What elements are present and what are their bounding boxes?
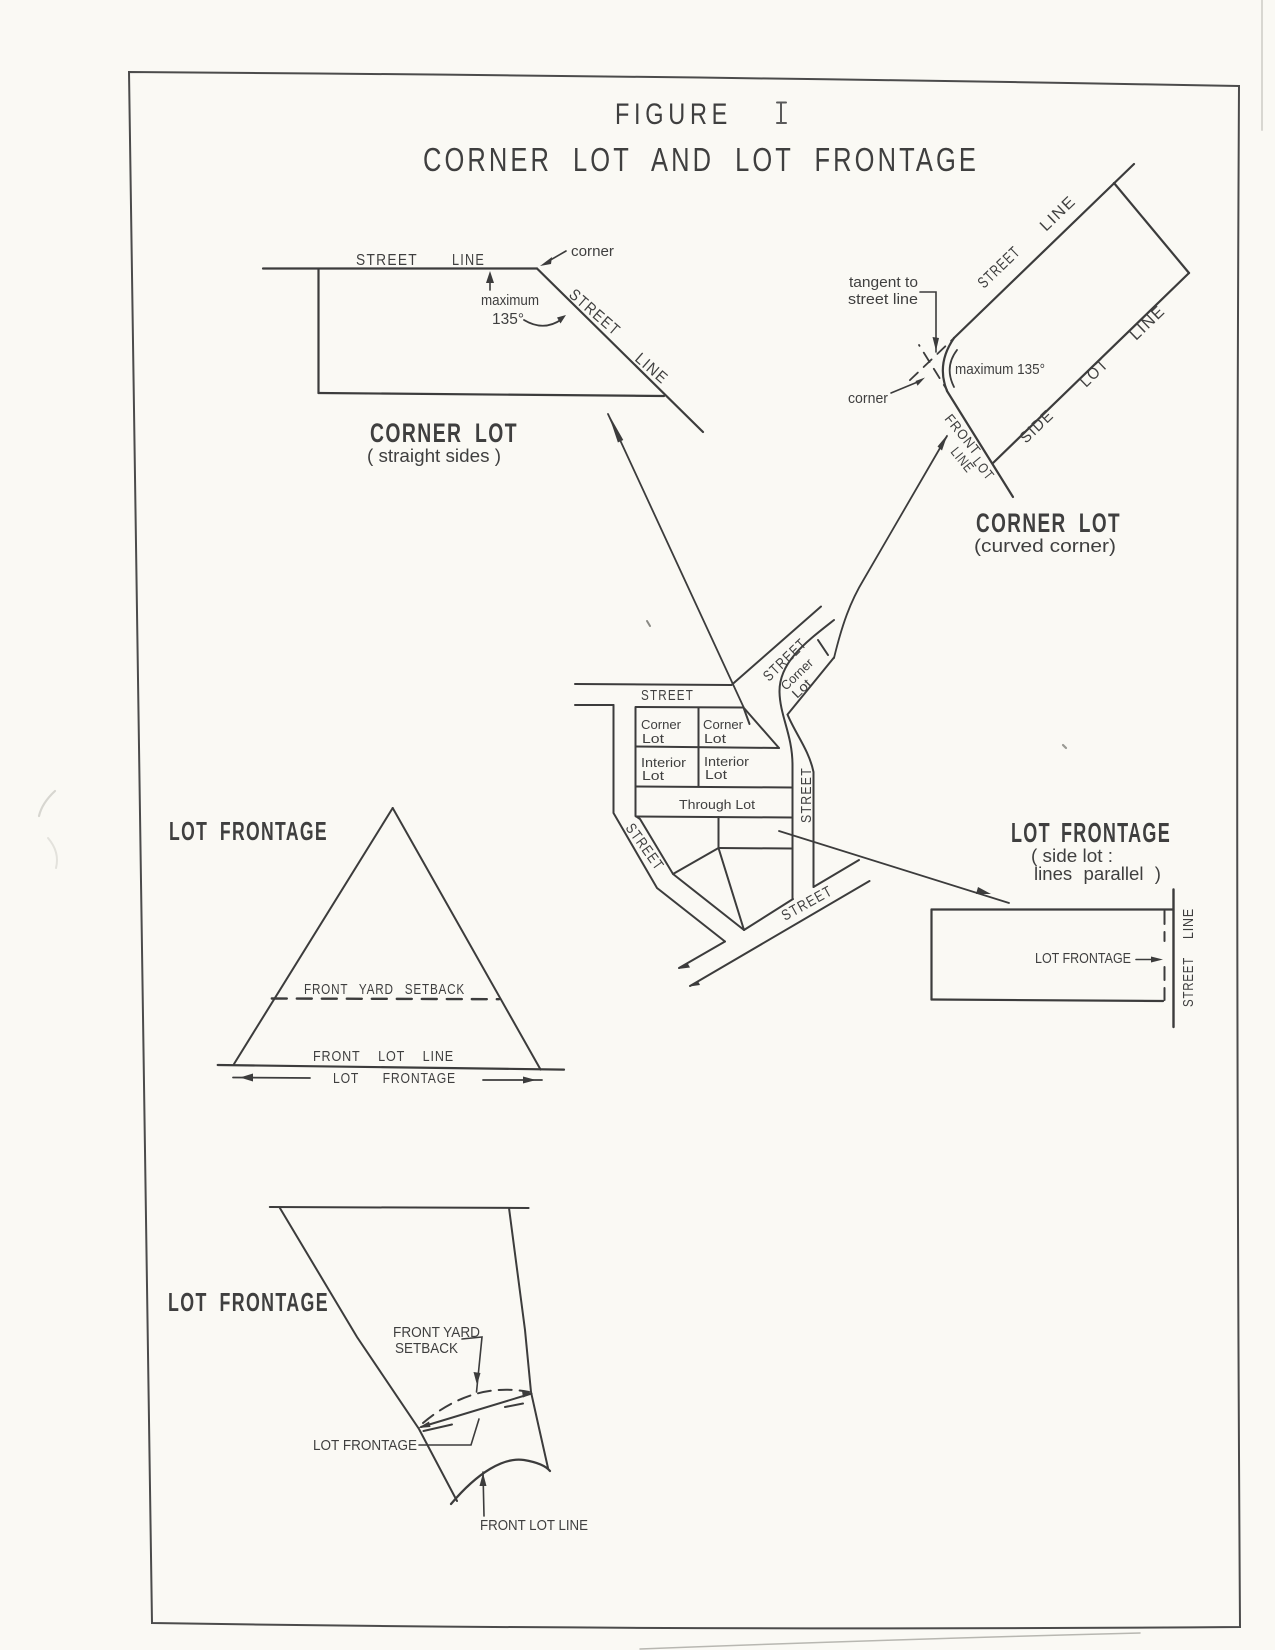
svg-text:LINE: LINE	[452, 252, 485, 269]
svg-text:SETBACK: SETBACK	[395, 1340, 458, 1357]
svg-text:Lot: Lot	[642, 731, 664, 746]
svg-text:LOT FRONTAGE: LOT FRONTAGE	[333, 1070, 456, 1087]
svg-text:SIDE: SIDE	[1017, 407, 1058, 447]
svg-text:lines parallel ): lines parallel )	[1034, 864, 1161, 884]
svg-text:CORNER LOT: CORNER LOT	[370, 418, 518, 448]
svg-text:LOT FRONTAGE: LOT FRONTAGE	[1035, 950, 1131, 967]
svg-text:Through Lot: Through Lot	[679, 797, 755, 812]
svg-text:STREET: STREET	[1180, 957, 1197, 1007]
svg-text:STREET: STREET	[356, 252, 418, 269]
svg-text:FIGURE: FIGURE	[615, 98, 732, 131]
svg-text:street line: street line	[848, 291, 918, 308]
svg-text:LOT FRONTAGE: LOT FRONTAGE	[1011, 817, 1171, 848]
svg-text:STREET: STREET	[798, 767, 815, 823]
svg-text:LOT FRONTAGE: LOT FRONTAGE	[169, 816, 328, 846]
svg-text:( side lot :: ( side lot :	[1031, 846, 1113, 866]
svg-text:( straight sides ): ( straight sides )	[367, 446, 501, 466]
svg-text:135°: 135°	[492, 311, 524, 328]
svg-text:LINE: LINE	[1127, 302, 1169, 343]
svg-text:Corner: Corner	[641, 717, 682, 732]
svg-text:LOT FRONTAGE: LOT FRONTAGE	[313, 1437, 417, 1454]
svg-text:corner: corner	[848, 390, 888, 407]
svg-text:FRONT LOT LINE: FRONT LOT LINE	[313, 1048, 454, 1065]
svg-text:LOT: LOT	[1077, 356, 1113, 391]
svg-text:FRONT LOT LINE: FRONT LOT LINE	[480, 1517, 588, 1534]
svg-text:LOT FRONTAGE: LOT FRONTAGE	[168, 1287, 329, 1317]
svg-text:CORNER LOT: CORNER LOT	[976, 508, 1121, 538]
svg-text:tangent to: tangent to	[849, 274, 918, 291]
svg-text:CORNER LOT AND LOT FRONTAGE: CORNER LOT AND LOT FRONTAGE	[423, 141, 979, 178]
svg-text:Lot: Lot	[704, 731, 726, 746]
svg-text:STREET: STREET	[641, 687, 694, 704]
svg-text:STREET: STREET	[975, 244, 1024, 292]
svg-text:FRONT YARD SETBACK: FRONT YARD SETBACK	[304, 981, 465, 998]
svg-text:Lot: Lot	[705, 767, 727, 782]
svg-text:corner: corner	[571, 243, 614, 260]
svg-text:Lot: Lot	[642, 768, 664, 783]
svg-text:maximum: maximum	[481, 292, 539, 309]
svg-text:Corner: Corner	[703, 717, 744, 732]
svg-text:maximum 135°: maximum 135°	[955, 361, 1045, 378]
svg-text:STREET: STREET	[565, 286, 623, 340]
svg-text:LINE: LINE	[1037, 193, 1080, 235]
svg-text:(curved corner): (curved corner)	[974, 536, 1116, 556]
svg-text:LINE: LINE	[1180, 908, 1197, 939]
